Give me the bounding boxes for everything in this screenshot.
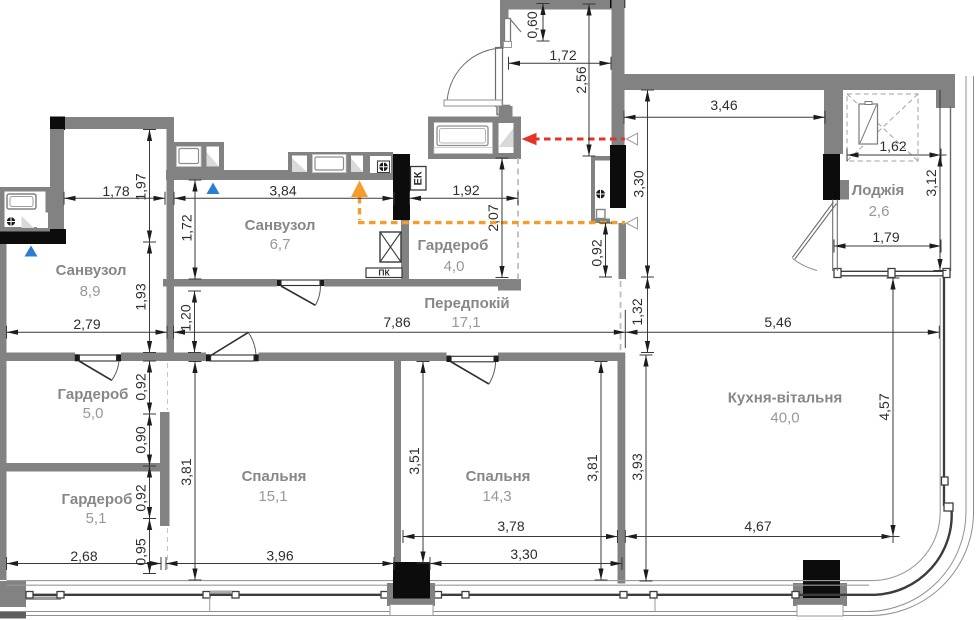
svg-text:Гардероб: Гардероб (58, 386, 129, 403)
svg-text:3,12: 3,12 (923, 169, 939, 196)
svg-text:1,32: 1,32 (629, 298, 645, 325)
svg-text:1,92: 1,92 (452, 182, 479, 198)
svg-text:2,07: 2,07 (485, 204, 501, 231)
svg-text:15,1: 15,1 (258, 488, 287, 505)
svg-text:Гардероб: Гардероб (62, 491, 133, 508)
svg-text:3,30: 3,30 (510, 546, 537, 562)
svg-text:1,72: 1,72 (549, 47, 576, 63)
svg-text:Спальня: Спальня (466, 468, 531, 485)
svg-text:1,62: 1,62 (879, 138, 906, 154)
svg-text:1,72: 1,72 (179, 214, 195, 241)
svg-text:Санвузол: Санвузол (56, 262, 127, 279)
svg-text:5,46: 5,46 (764, 314, 791, 330)
svg-text:3,78: 3,78 (497, 518, 524, 534)
svg-text:1,97: 1,97 (133, 173, 149, 200)
svg-text:0,90: 0,90 (133, 426, 149, 453)
svg-text:2,79: 2,79 (73, 316, 100, 332)
svg-text:0,95: 0,95 (133, 538, 149, 565)
svg-text:4,0: 4,0 (444, 258, 465, 275)
svg-text:3,84: 3,84 (269, 183, 296, 199)
svg-text:Санвузол: Санвузол (245, 217, 316, 234)
svg-text:Гардероб: Гардероб (418, 237, 489, 254)
svg-text:3,96: 3,96 (266, 548, 293, 564)
svg-text:4,67: 4,67 (744, 518, 771, 534)
svg-text:14,3: 14,3 (482, 488, 511, 505)
svg-text:5,1: 5,1 (86, 510, 107, 527)
svg-text:2,68: 2,68 (70, 548, 97, 564)
svg-text:0,92: 0,92 (133, 484, 149, 511)
svg-text:Лоджія: Лоджія (852, 182, 905, 199)
svg-text:1,78: 1,78 (102, 183, 129, 199)
svg-text:Передпокій: Передпокій (424, 295, 509, 312)
svg-text:4,57: 4,57 (876, 393, 892, 420)
svg-text:40,0: 40,0 (770, 410, 799, 427)
svg-text:3,81: 3,81 (178, 458, 194, 485)
svg-text:2,6: 2,6 (869, 203, 890, 220)
svg-text:1,79: 1,79 (872, 229, 899, 245)
svg-text:5,0: 5,0 (83, 405, 104, 422)
svg-text:0,92: 0,92 (589, 239, 605, 266)
svg-text:3,30: 3,30 (631, 170, 647, 197)
svg-text:3,46: 3,46 (710, 97, 737, 113)
svg-text:7,86: 7,86 (383, 314, 410, 330)
svg-text:ЕК: ЕК (412, 171, 424, 185)
svg-text:0,60: 0,60 (524, 11, 540, 38)
svg-text:Спальня: Спальня (242, 468, 307, 485)
svg-text:2,56: 2,56 (573, 66, 589, 93)
svg-text:3,51: 3,51 (406, 447, 422, 474)
svg-text:Кухня-вітальня: Кухня-вітальня (728, 390, 842, 407)
svg-text:1,93: 1,93 (133, 283, 149, 310)
svg-text:8,9: 8,9 (80, 283, 101, 300)
svg-text:3,81: 3,81 (584, 454, 600, 481)
svg-text:17,1: 17,1 (451, 314, 480, 331)
svg-text:0,92: 0,92 (133, 373, 149, 400)
svg-text:1,20: 1,20 (178, 304, 194, 331)
svg-text:ПК: ПК (378, 268, 390, 278)
svg-text:3,93: 3,93 (629, 453, 645, 480)
svg-text:6,7: 6,7 (270, 236, 291, 253)
